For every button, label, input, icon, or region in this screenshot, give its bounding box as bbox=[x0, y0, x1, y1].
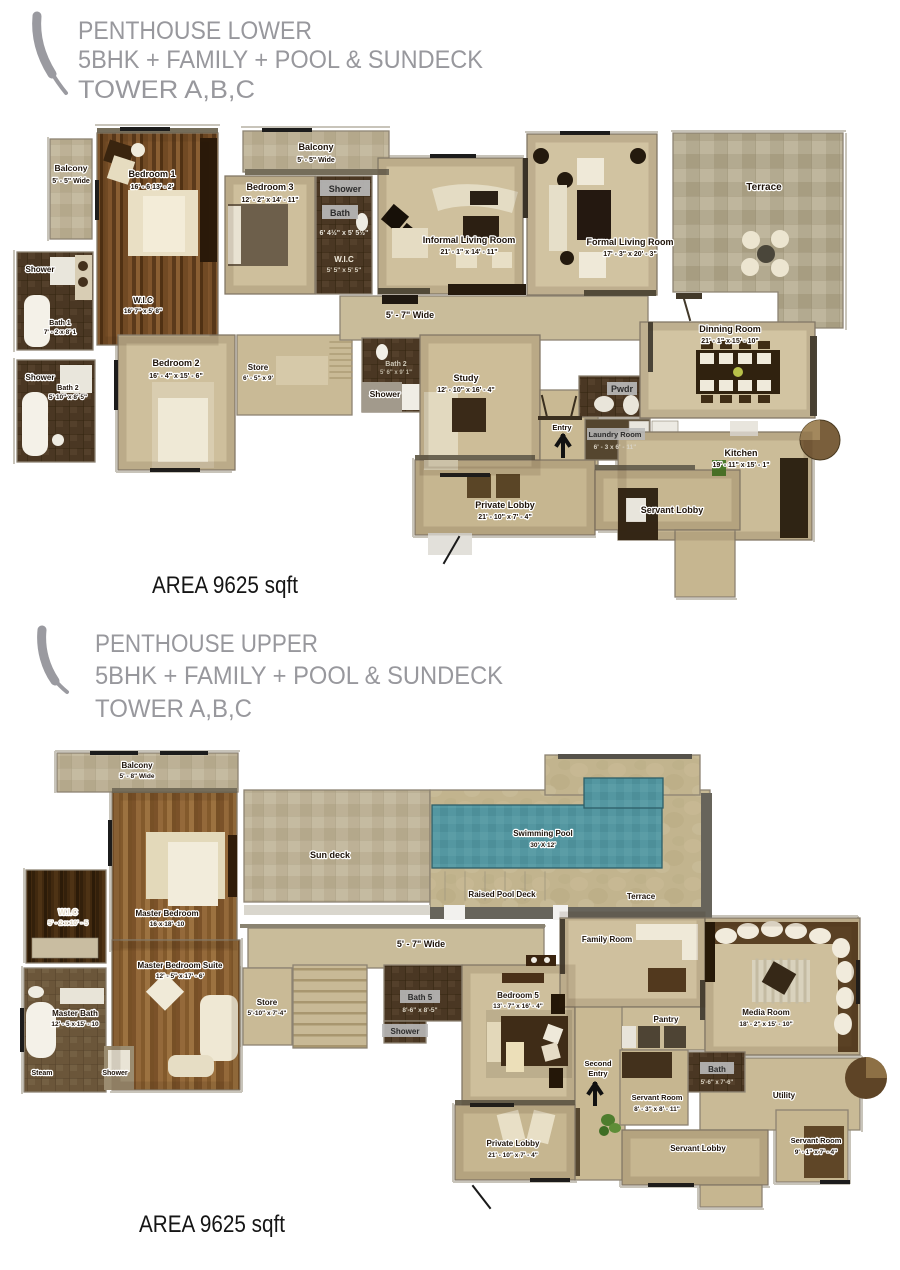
svg-text:Balcony: Balcony bbox=[298, 142, 333, 152]
svg-text:Shower: Shower bbox=[26, 265, 55, 274]
svg-text:Bedroom 3: Bedroom 3 bbox=[246, 182, 293, 192]
svg-text:Terrace: Terrace bbox=[746, 182, 782, 193]
svg-text:Shower: Shower bbox=[102, 1070, 128, 1077]
svg-text:Master Bath: Master Bath bbox=[52, 1009, 98, 1018]
svg-text:21' - 10" x 7' - 4": 21' - 10" x 7' - 4" bbox=[488, 1152, 538, 1159]
svg-text:Bath 2: Bath 2 bbox=[57, 385, 79, 392]
svg-text:Bath 2: Bath 2 bbox=[385, 361, 407, 368]
svg-text:6' - 3 x 6' - 11": 6' - 3 x 6' - 11" bbox=[594, 444, 637, 451]
svg-text:5' 5" x 5' 5": 5' 5" x 5' 5" bbox=[327, 267, 362, 274]
svg-text:Sun deck: Sun deck bbox=[310, 850, 351, 860]
svg-text:12' - 5 x 15' - 10: 12' - 5 x 15' - 10 bbox=[51, 1021, 99, 1028]
svg-text:Bath 1: Bath 1 bbox=[49, 320, 71, 327]
svg-text:PENTHOUSE UPPER: PENTHOUSE UPPER bbox=[95, 630, 318, 658]
svg-text:5BHK + FAMILY + POOL & SUNDECK: 5BHK + FAMILY + POOL & SUNDECK bbox=[95, 662, 503, 690]
svg-text:PENTHOUSE LOWER: PENTHOUSE LOWER bbox=[78, 17, 312, 45]
svg-text:AREA 9625 sqft: AREA 9625 sqft bbox=[152, 572, 298, 599]
svg-text:16' - 6 13' - 2': 16' - 6 13' - 2' bbox=[131, 184, 174, 191]
svg-text:5' - 7" Wide: 5' - 7" Wide bbox=[397, 939, 445, 949]
svg-text:Servant Lobby: Servant Lobby bbox=[670, 1144, 726, 1153]
svg-text:16' 7" x 5' 8": 16' 7" x 5' 8" bbox=[124, 308, 162, 315]
svg-text:Servant Lobby: Servant Lobby bbox=[641, 505, 704, 515]
svg-text:Shower: Shower bbox=[391, 1027, 420, 1036]
svg-text:6' 4½" x 5' 5½": 6' 4½" x 5' 5½" bbox=[320, 229, 369, 237]
svg-text:30' X 12': 30' X 12' bbox=[530, 842, 556, 849]
svg-text:W.I.C: W.I.C bbox=[334, 255, 354, 264]
svg-text:Master Bedroom Suite: Master Bedroom Suite bbox=[138, 961, 223, 970]
svg-text:19' - 11" x 15' - 1": 19' - 11" x 15' - 1" bbox=[712, 462, 769, 469]
svg-text:Dinning Room: Dinning Room bbox=[699, 324, 761, 334]
svg-text:Balcony: Balcony bbox=[54, 163, 87, 173]
svg-text:5'-6" x 7'-6": 5'-6" x 7'-6" bbox=[701, 1080, 734, 1086]
svg-text:Pwdr: Pwdr bbox=[611, 384, 634, 394]
svg-text:8'-6" x 8'-5": 8'-6" x 8'-5" bbox=[402, 1007, 437, 1014]
svg-text:21' - 10" x 7' - 4": 21' - 10" x 7' - 4" bbox=[478, 514, 532, 521]
svg-text:18' - 2" x 15' - 10": 18' - 2" x 15' - 10" bbox=[739, 1021, 792, 1028]
svg-text:Media Room: Media Room bbox=[742, 1008, 790, 1017]
svg-text:5' - 5" Wide: 5' - 5" Wide bbox=[297, 157, 335, 164]
svg-text:Utility: Utility bbox=[773, 1091, 796, 1100]
svg-text:5'-10" x 7'-4": 5'-10" x 7'-4" bbox=[248, 1010, 287, 1017]
svg-text:12' - 5" x 17' - 6': 12' - 5" x 17' - 6' bbox=[156, 973, 205, 980]
svg-text:9' - 1" x 7' - 4": 9' - 1" x 7' - 4" bbox=[795, 1149, 838, 1156]
svg-text:Laundry Room: Laundry Room bbox=[589, 430, 642, 439]
svg-text:Private Lobby: Private Lobby bbox=[487, 1139, 540, 1148]
svg-text:Kitchen: Kitchen bbox=[724, 448, 757, 458]
svg-text:7' - 2 x 8' 1: 7' - 2 x 8' 1 bbox=[44, 329, 77, 336]
svg-text:Formal Living Room: Formal Living Room bbox=[586, 237, 673, 247]
svg-text:AREA 9625 sqft: AREA 9625 sqft bbox=[139, 1211, 285, 1238]
svg-text:Second: Second bbox=[584, 1059, 612, 1068]
svg-text:5' - 5" Wide: 5' - 5" Wide bbox=[52, 178, 90, 185]
svg-text:Family Room: Family Room bbox=[582, 935, 632, 944]
svg-text:Shower: Shower bbox=[329, 184, 362, 194]
svg-text:Store: Store bbox=[248, 363, 269, 372]
svg-text:12' - 2" x 14' - 11": 12' - 2" x 14' - 11" bbox=[241, 197, 298, 204]
svg-text:Bedroom 1: Bedroom 1 bbox=[128, 169, 175, 179]
svg-text:Entry: Entry bbox=[552, 423, 572, 432]
svg-text:Swimming Pool: Swimming Pool bbox=[513, 829, 573, 838]
svg-text:TOWER A,B,C: TOWER A,B,C bbox=[95, 695, 252, 723]
svg-text:16' - 4" x 15' - 6": 16' - 4" x 15' - 6" bbox=[149, 373, 203, 380]
svg-text:5' - 2 x 10' - 5: 5' - 2 x 10' - 5 bbox=[48, 920, 88, 927]
svg-text:W.I.C: W.I.C bbox=[133, 296, 153, 305]
svg-text:Store: Store bbox=[257, 998, 278, 1007]
svg-text:6' - 5" x 9': 6' - 5" x 9' bbox=[243, 375, 273, 382]
svg-text:5' - 7" Wide: 5' - 7" Wide bbox=[386, 310, 434, 320]
svg-text:Terrace: Terrace bbox=[627, 892, 656, 901]
svg-text:Bedroom 2: Bedroom 2 bbox=[152, 358, 199, 368]
svg-text:13' - 7" x 16' - 4": 13' - 7" x 16' - 4" bbox=[493, 1003, 543, 1010]
svg-text:12' - 10" x 16' - 4": 12' - 10" x 16' - 4" bbox=[437, 387, 494, 394]
svg-text:5' - 8" Wide: 5' - 8" Wide bbox=[120, 773, 155, 780]
svg-text:Pantry: Pantry bbox=[654, 1015, 679, 1024]
svg-text:5' 10" x 8' 5": 5' 10" x 8' 5" bbox=[49, 394, 87, 401]
svg-text:Servant Room: Servant Room bbox=[791, 1136, 842, 1145]
svg-text:Balcony: Balcony bbox=[121, 761, 153, 770]
svg-text:Shower: Shower bbox=[26, 373, 55, 382]
svg-text:Informal Living Room: Informal Living Room bbox=[423, 235, 516, 245]
svg-text:Master Bedroom: Master Bedroom bbox=[135, 909, 198, 918]
svg-text:21' - 1" x 15' - 10": 21' - 1" x 15' - 10" bbox=[701, 338, 758, 345]
svg-text:Study: Study bbox=[453, 373, 478, 383]
svg-text:Bath: Bath bbox=[708, 1065, 726, 1074]
svg-text:TOWER A,B,C: TOWER A,B,C bbox=[78, 76, 255, 104]
svg-text:Steam: Steam bbox=[31, 1070, 52, 1077]
svg-text:Servant Room: Servant Room bbox=[632, 1093, 683, 1102]
svg-text:16 x 18' -10: 16 x 18' -10 bbox=[150, 921, 185, 928]
svg-text:5' 6" x 9' 1": 5' 6" x 9' 1" bbox=[380, 370, 412, 376]
svg-text:Bath: Bath bbox=[330, 208, 350, 218]
svg-text:8' - 3" x 8' - 11": 8' - 3" x 8' - 11" bbox=[634, 1106, 680, 1113]
svg-text:Bedroom 5: Bedroom 5 bbox=[497, 991, 539, 1000]
svg-text:W.I.C: W.I.C bbox=[58, 908, 78, 917]
svg-text:21' - 1" x 14' - 11": 21' - 1" x 14' - 11" bbox=[440, 249, 497, 256]
svg-text:17' - 3" x 20' - 3": 17' - 3" x 20' - 3" bbox=[603, 251, 657, 258]
svg-text:Bath 5: Bath 5 bbox=[408, 993, 433, 1002]
svg-text:5BHK + FAMILY + POOL & SUNDECK: 5BHK + FAMILY + POOL & SUNDECK bbox=[78, 46, 483, 74]
svg-text:Raised Pool Deck: Raised Pool Deck bbox=[468, 890, 536, 899]
svg-text:Private Lobby: Private Lobby bbox=[475, 500, 535, 510]
svg-text:Shower: Shower bbox=[370, 389, 401, 399]
svg-text:Entry: Entry bbox=[588, 1069, 608, 1078]
